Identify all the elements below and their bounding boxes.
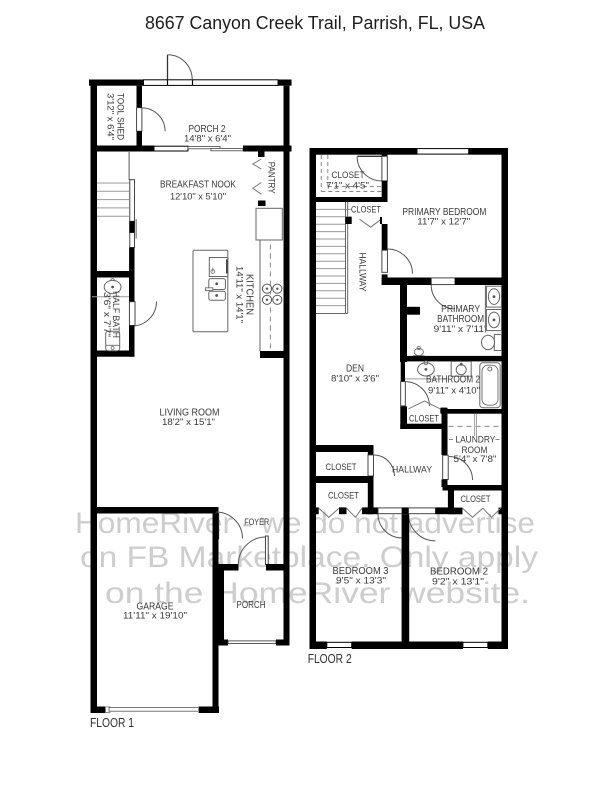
svg-text:LAUNDRY: LAUNDRY (455, 435, 495, 445)
svg-text:BREAKFAST NOOK: BREAKFAST NOOK (160, 179, 236, 190)
svg-text:12'10" x 5'10": 12'10" x 5'10" (170, 191, 226, 202)
svg-text:3'12" x 6'4": 3'12" x 6'4" (106, 93, 116, 140)
svg-text:CLOSET: CLOSET (461, 494, 491, 504)
svg-text:HALLWAY: HALLWAY (392, 464, 432, 474)
svg-text:7'1" x 4'5": 7'1" x 4'5" (326, 180, 369, 190)
svg-text:14'8" x 6'4": 14'8" x 6'4" (184, 134, 231, 145)
svg-text:3'6" x 7'7": 3'6" x 7'7" (102, 292, 112, 337)
svg-text:9'2" x 13'1": 9'2" x 13'1" (432, 576, 484, 587)
svg-text:PORCH: PORCH (237, 600, 266, 611)
svg-text:9'11" x 7'11": 9'11" x 7'11" (434, 324, 488, 335)
svg-text:CLOSET: CLOSET (326, 462, 357, 472)
svg-text:CLOSET: CLOSET (328, 490, 359, 500)
svg-text:11'7" x 12'7": 11'7" x 12'7" (417, 216, 470, 227)
svg-text:FOYER: FOYER (244, 517, 269, 527)
svg-text:FLOOR 1: FLOOR 1 (90, 716, 134, 730)
svg-text:CLOSET: CLOSET (351, 204, 381, 214)
svg-text:HALLWAY: HALLWAY (358, 253, 368, 292)
svg-text:BATHROOM 2: BATHROOM 2 (426, 374, 480, 385)
svg-text:PANTRY: PANTRY (266, 162, 276, 194)
svg-text:9'11" x 4'10": 9'11" x 4'10" (428, 385, 480, 396)
svg-text:8667 Canyon Creek Trail, Parri: 8667 Canyon Creek Trail, Parrish, FL, US… (145, 13, 485, 33)
svg-text:11'11" x 19'10": 11'11" x 19'10" (123, 611, 187, 622)
svg-text:5'4" x 7'8": 5'4" x 7'8" (454, 454, 497, 464)
svg-text:14'11" x 14'1": 14'11" x 14'1" (234, 266, 245, 323)
svg-text:CLOSET: CLOSET (409, 413, 439, 423)
svg-text:TOOL SHED: TOOL SHED (116, 93, 126, 140)
svg-text:CLOSET: CLOSET (332, 170, 365, 180)
svg-text:8'10" x 3'6": 8'10" x 3'6" (331, 373, 379, 384)
svg-text:FLOOR 2: FLOOR 2 (308, 652, 352, 666)
svg-text:9'5" x 13'3": 9'5" x 13'3" (336, 575, 386, 586)
svg-text:18'2" x 15'1": 18'2" x 15'1" (162, 417, 215, 428)
